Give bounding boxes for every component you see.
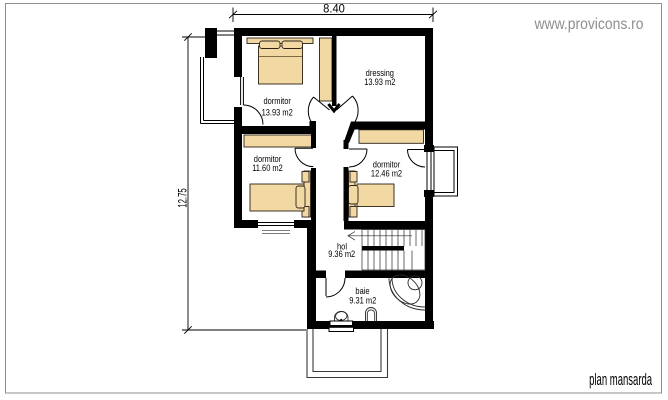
svg-text:9.36 m2: 9.36 m2 — [328, 248, 355, 259]
svg-text:12.46 m2: 12.46 m2 — [371, 168, 402, 179]
svg-text:13.93 m2: 13.93 m2 — [364, 76, 395, 87]
svg-text:9.31 m2: 9.31 m2 — [349, 295, 376, 306]
svg-text:13.93 m2: 13.93 m2 — [262, 107, 293, 118]
svg-text:dormitor: dormitor — [263, 95, 291, 106]
svg-text:11.60 m2: 11.60 m2 — [252, 162, 283, 173]
svg-text:12.75: 12.75 — [177, 188, 190, 208]
svg-text:8.40: 8.40 — [323, 3, 345, 15]
svg-text:plan mansarda: plan mansarda — [589, 370, 652, 389]
svg-text:www.provicons.ro: www.provicons.ro — [534, 15, 644, 33]
